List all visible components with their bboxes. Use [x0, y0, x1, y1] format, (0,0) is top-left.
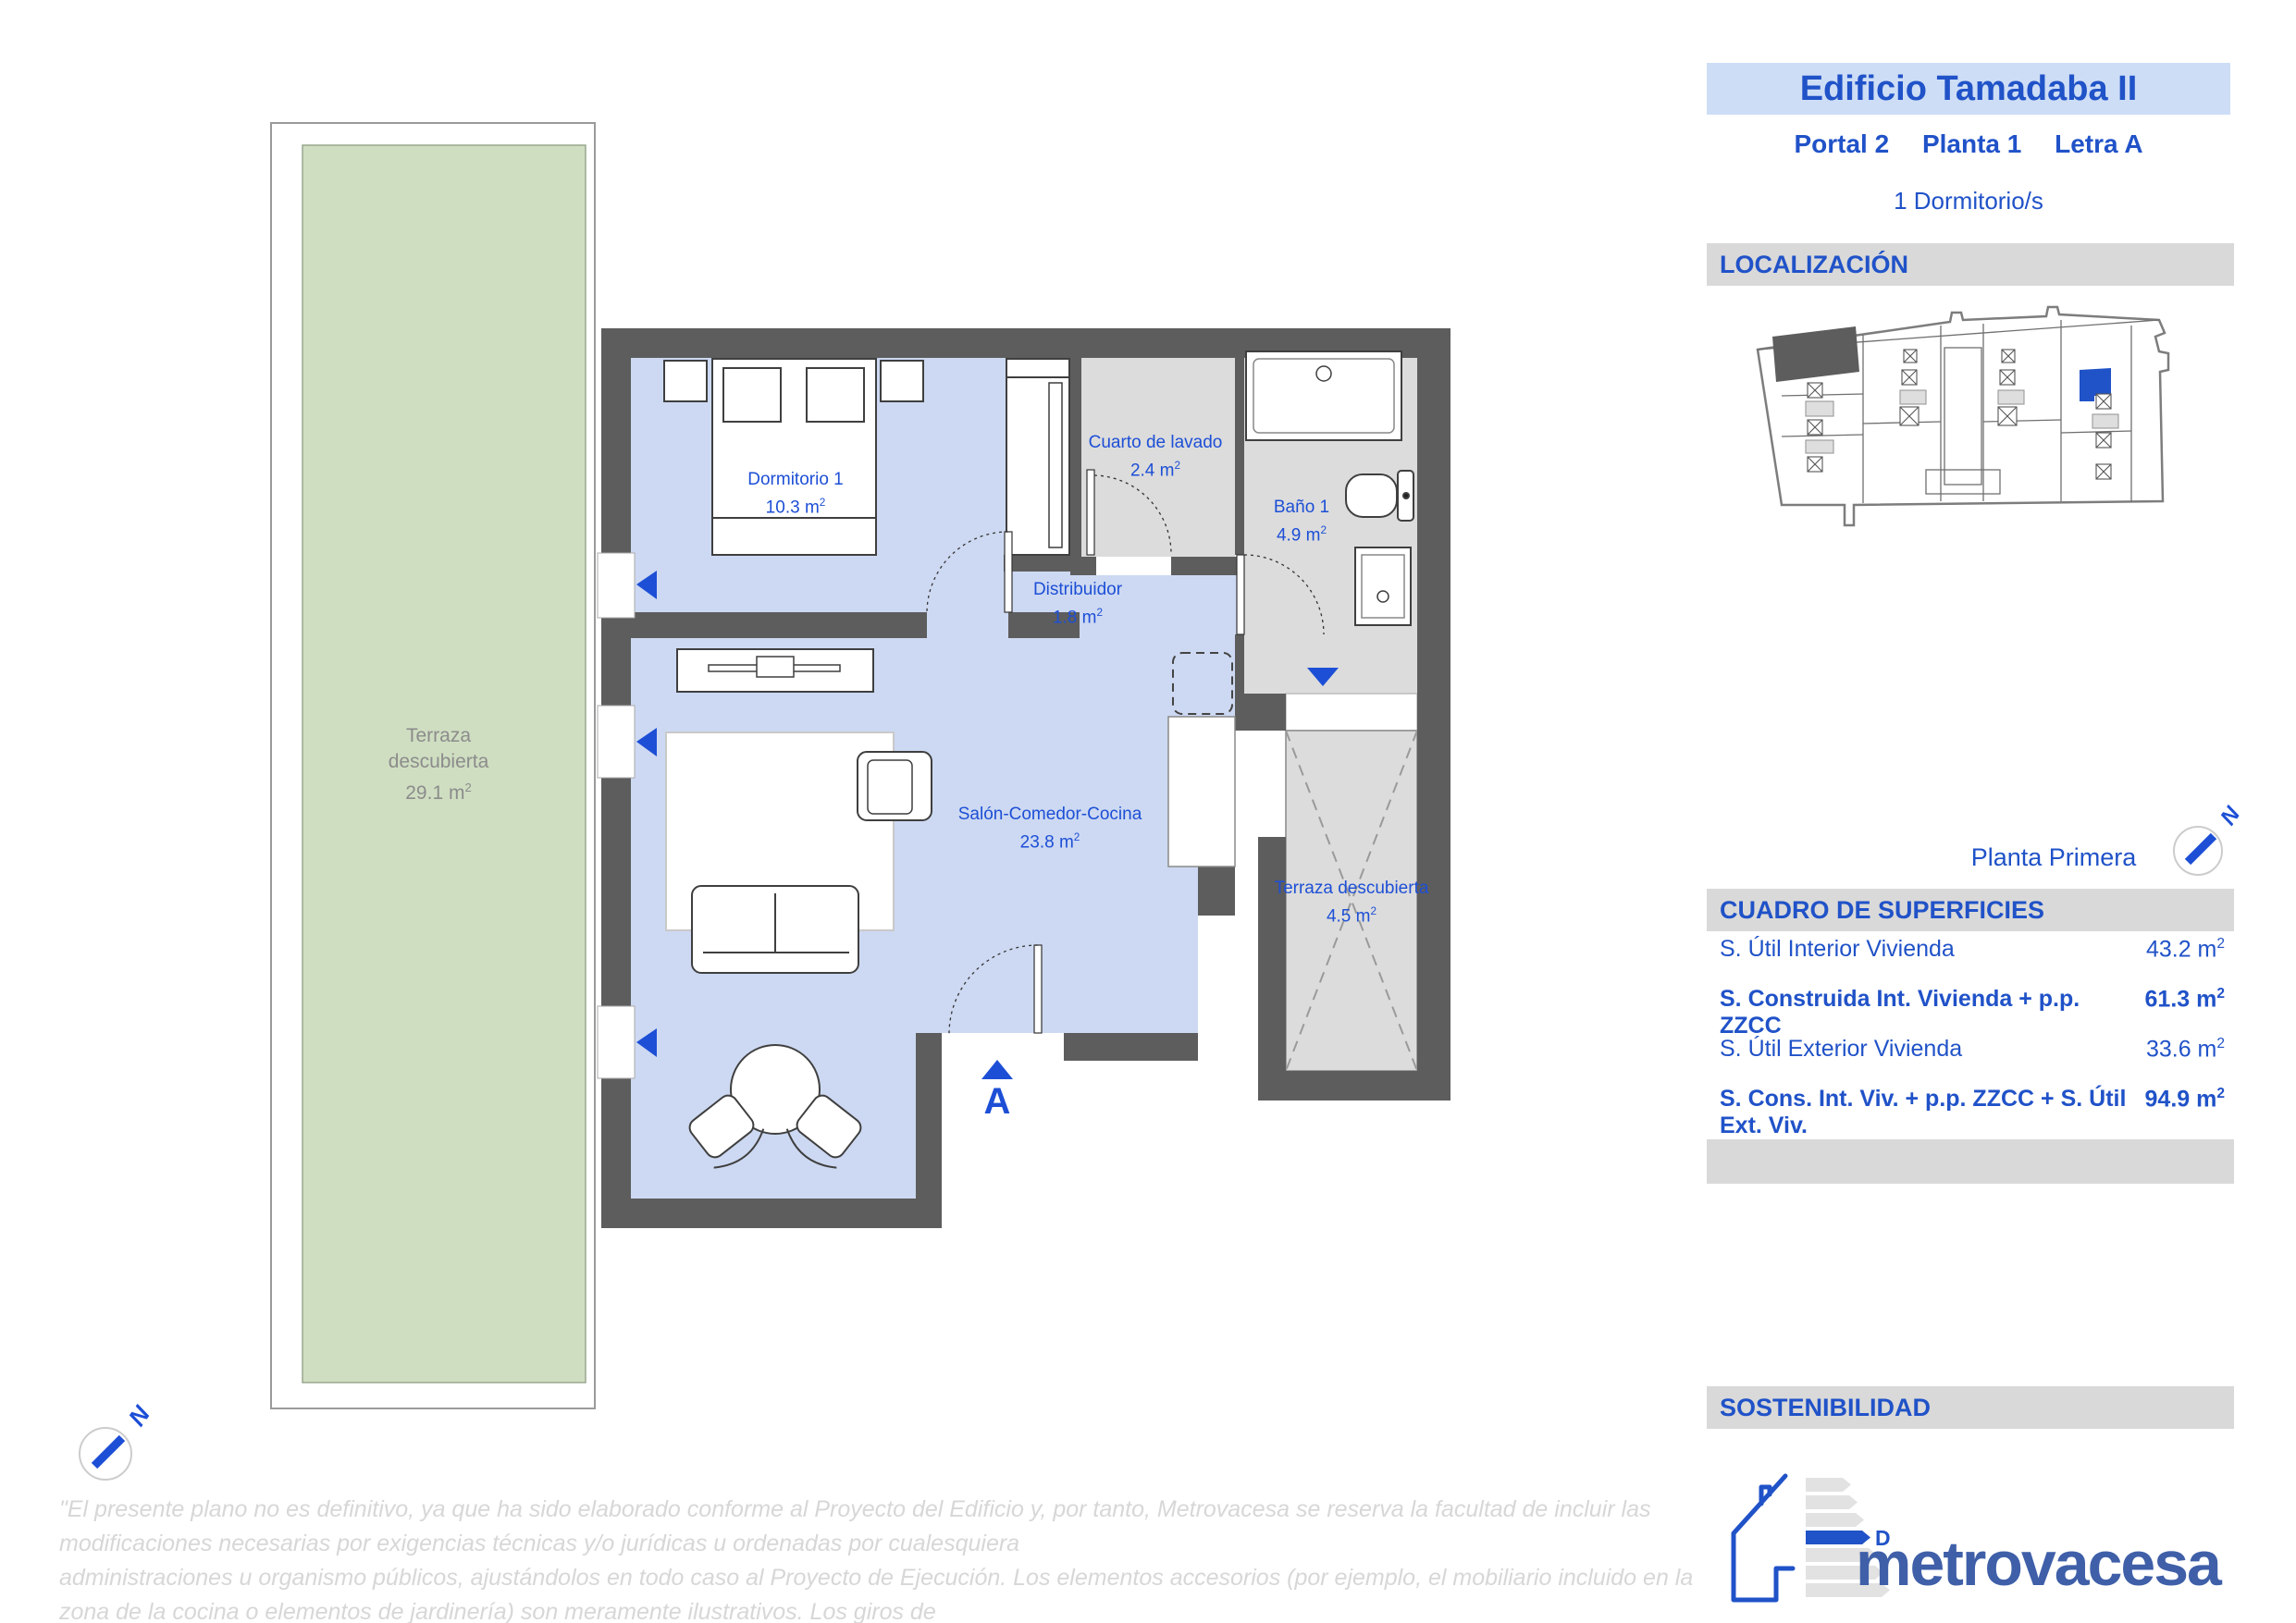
divider-bar	[1707, 1139, 2234, 1184]
room-label-dormitorio-1: Dormitorio 1 10.3 m2	[747, 468, 843, 519]
unit-identifier: Portal 2 Planta 1 Letra A	[1707, 129, 2230, 159]
planta-label: Planta 1	[1922, 129, 2021, 158]
toilet-icon	[1346, 471, 1413, 521]
room-label-distribuidor: Distribuidor 1.8 m2	[1033, 578, 1122, 629]
surfaces-row-value: 61.3 m2	[2145, 986, 2225, 1013]
svg-text:N: N	[2216, 802, 2245, 830]
surfaces-row: S. Útil Interior Vivienda43.2 m2	[1707, 936, 2234, 986]
surfaces-row-value: 43.2 m2	[2146, 936, 2225, 963]
armchair-icon	[858, 752, 932, 820]
room-label-terraza-45: Terraza descubierta 4.5 m2	[1275, 877, 1429, 928]
room-label-cuarto-de-lavado: Cuarto de lavado 2.4 m2	[1089, 431, 1223, 482]
bedrooms-count: 1 Dormitorio/s	[1707, 187, 2230, 215]
disclaimer-line: administraciones u organismo públicos, a…	[59, 1561, 1715, 1623]
fridge-space-icon	[1173, 653, 1232, 714]
building-title: Edificio Tamadaba II	[1707, 63, 2230, 115]
section-header-cuadro: CUADRO DE SUPERFICIES	[1707, 889, 2234, 931]
disclaimer-line: "El presente plano no es definitivo, ya …	[59, 1493, 1715, 1561]
sink-icon	[1355, 547, 1411, 625]
surfaces-row-label: S. Cons. Int. Viv. + p.p. ZZCC + S. Útil…	[1720, 1086, 2145, 1139]
disclaimer-text: "El presente plano no es definitivo, ya …	[59, 1493, 1715, 1623]
room-label-salon-comedor-cocina: Salón-Comedor-Cocina 23.8 m2	[958, 803, 1142, 854]
svg-text:N: N	[123, 1400, 156, 1432]
location-key-plan	[1745, 292, 2179, 535]
north-compass-icon: N	[57, 1395, 178, 1506]
room-label-bano-1: Baño 1 4.9 m2	[1274, 496, 1329, 547]
entrance-section-marker: A	[981, 1060, 1013, 1120]
floor-name: Planta Primera	[1943, 843, 2165, 872]
surfaces-row: S. Útil Exterior Vivienda33.6 m2	[1707, 1036, 2234, 1086]
kitchen-counter-icon	[1168, 717, 1235, 867]
tv-sideboard-icon	[677, 649, 873, 692]
sofa-icon	[692, 886, 858, 973]
surfaces-row-label: S. Construida Int. Vivienda + p.p. ZZCC	[1720, 986, 2145, 1039]
entrance-arrow-icon	[981, 1060, 1013, 1079]
metrovacesa-logo: metrovacesa	[1856, 1528, 2220, 1600]
room-label-terraza-grande: Terraza descubierta 29.1 m2	[389, 723, 489, 806]
section-header-sostenibilidad: SOSTENIBILIDAD	[1707, 1386, 2234, 1429]
surfaces-row-label: S. Útil Interior Vivienda	[1720, 936, 1955, 963]
terrace-window-band	[1286, 694, 1417, 731]
surfaces-row-label: S. Útil Exterior Vivienda	[1720, 1036, 1962, 1063]
bathtub-icon	[1246, 351, 1401, 440]
section-header-localizacion: LOCALIZACIÓN	[1707, 243, 2234, 286]
nightstand-icon	[881, 361, 923, 401]
letra-label: Letra A	[2055, 129, 2142, 158]
surfaces-row: S. Cons. Int. Viv. + p.p. ZZCC + S. Útil…	[1707, 1086, 2234, 1136]
north-compass-icon: N	[2155, 797, 2266, 899]
bed-icon	[712, 359, 876, 555]
surfaces-table: S. Útil Interior Vivienda43.2 m2S. Const…	[1707, 936, 2234, 1136]
portal-label: Portal 2	[1794, 129, 1889, 158]
surfaces-row-value: 33.6 m2	[2146, 1036, 2225, 1063]
floorplan-sheet: Dormitorio 1 10.3 m2 Cuarto de lavado 2.…	[0, 0, 2296, 1623]
surfaces-row-value: 94.9 m2	[2145, 1086, 2225, 1113]
surfaces-row: S. Construida Int. Vivienda + p.p. ZZCC6…	[1707, 986, 2234, 1036]
wardrobe-icon	[1006, 359, 1069, 555]
nightstand-icon	[664, 361, 707, 401]
